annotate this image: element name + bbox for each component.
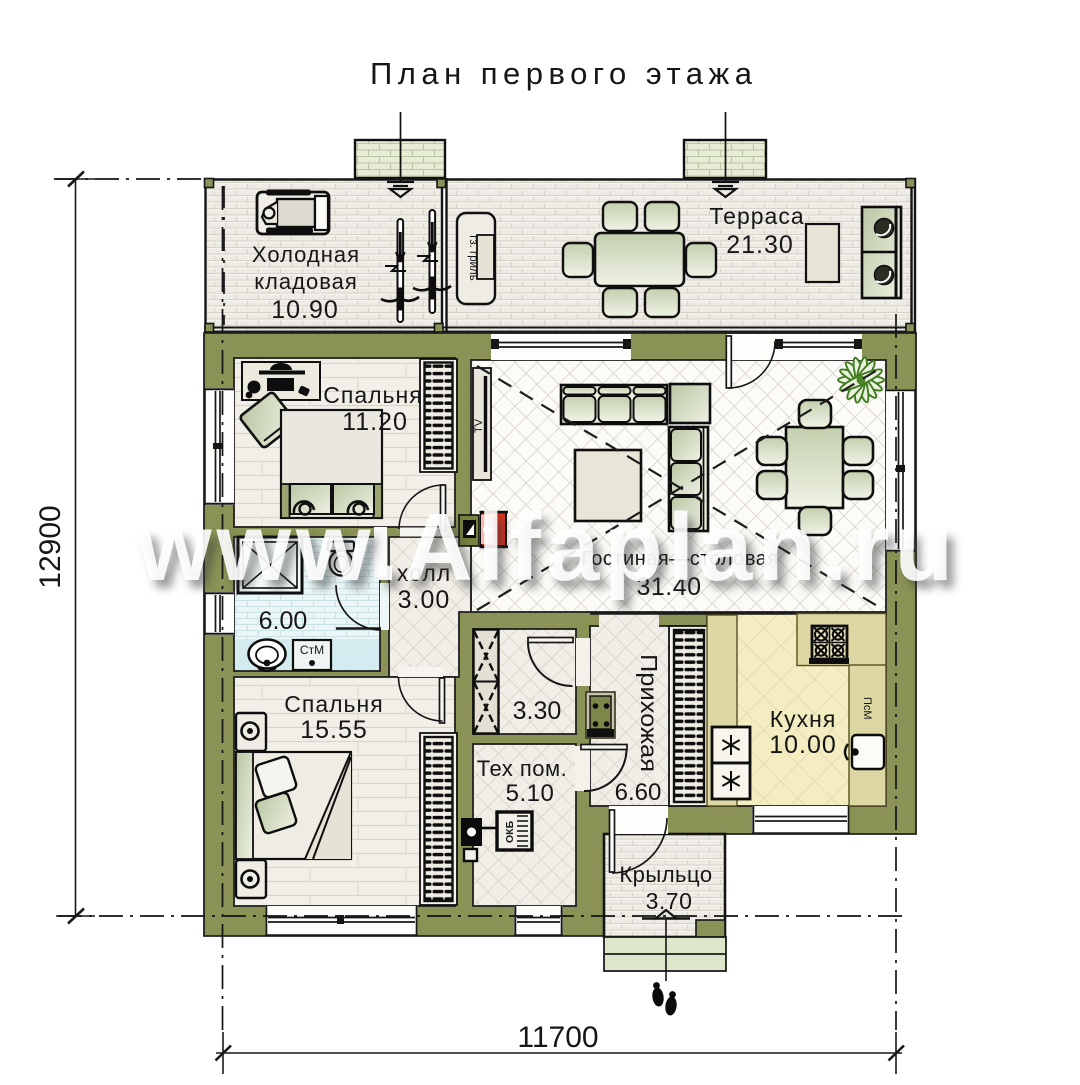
svg-text:11.20: 11.20 [342,408,408,436]
svg-text:Холодная: Холодная [252,242,360,267]
svg-text:гз. гриль: гз. гриль [467,235,479,280]
svg-text:5.10: 5.10 [506,780,555,807]
svg-text:кладовая: кладовая [254,269,358,294]
svg-text:ОКБ: ОКБ [504,820,516,843]
svg-text:Тех пом.: Тех пом. [477,756,567,781]
svg-text:ПсМ: ПсМ [861,697,873,720]
svg-text:12900: 12900 [34,505,67,588]
svg-text:6.00: 6.00 [259,607,308,635]
svg-text:3.70: 3.70 [646,888,693,914]
svg-text:3.30: 3.30 [513,697,562,725]
svg-text:10.90: 10.90 [271,296,339,324]
svg-text:План первого этажа: План первого этажа [370,56,756,91]
svg-text:Крыльцо: Крыльцо [619,862,712,887]
svg-text:Терраса: Терраса [709,203,804,229]
svg-text:21.30: 21.30 [726,231,794,259]
svg-text:СтМ: СтМ [300,643,324,657]
svg-text:6.60: 6.60 [615,779,662,806]
svg-text:11700: 11700 [517,1021,598,1054]
svg-text:10.00: 10.00 [769,731,837,759]
svg-text:15.55: 15.55 [300,716,368,744]
svg-text:Спальня: Спальня [323,382,422,408]
svg-text:Кухня: Кухня [770,706,837,732]
svg-text:ТV: ТV [473,418,485,433]
svg-text:Спальня: Спальня [284,691,383,717]
svg-text:Прихожая: Прихожая [636,654,662,772]
